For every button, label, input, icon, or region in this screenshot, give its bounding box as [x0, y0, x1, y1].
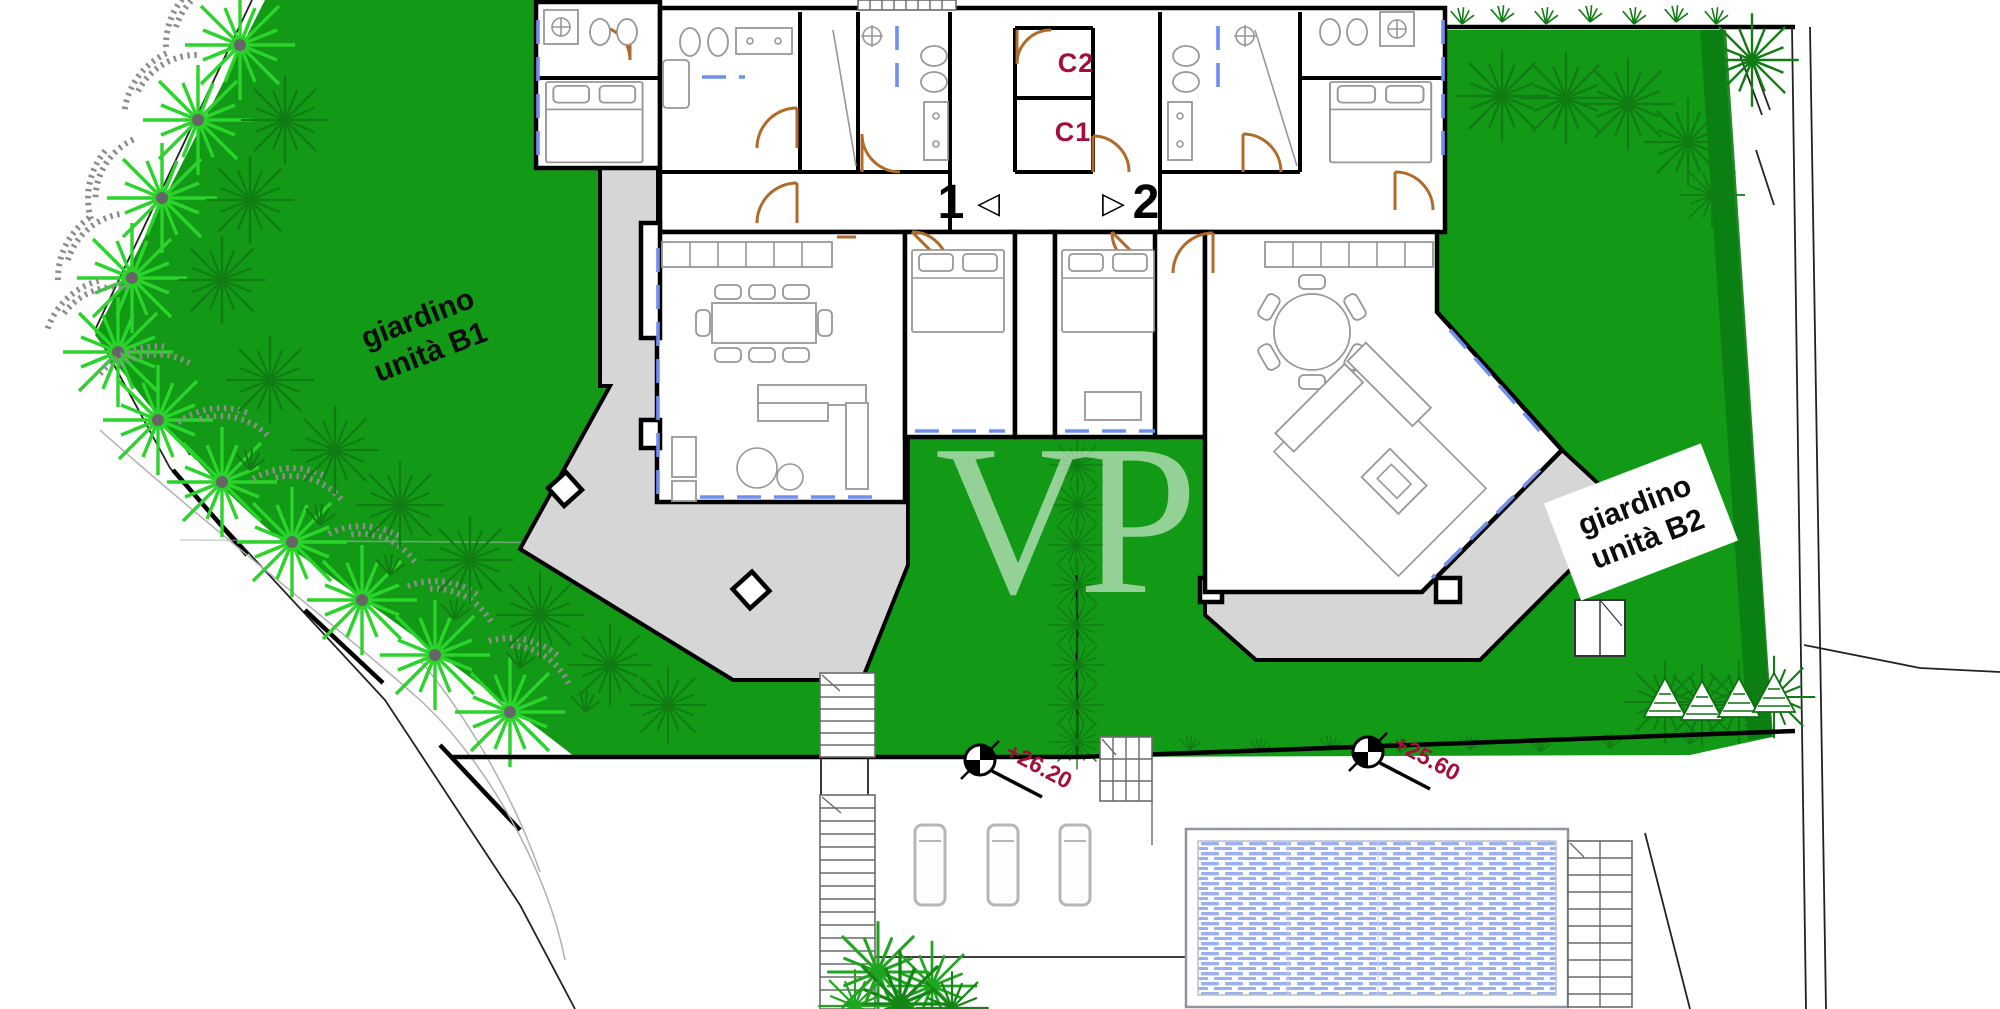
- tv-unit: [672, 481, 696, 501]
- bed-center-right: [1062, 250, 1154, 332]
- bidet: [617, 19, 637, 45]
- unit2-number: 2: [1133, 176, 1160, 229]
- garden-shed: [1575, 600, 1625, 656]
- floorplan-canvas: giardino unità B1 giardino unità B2 C2 C…: [0, 0, 2000, 1009]
- sun-loungers: [915, 825, 1090, 905]
- bed-left-block: [546, 82, 643, 162]
- kitchen-counter: [662, 242, 832, 267]
- bidet: [921, 72, 947, 92]
- pool: [1186, 829, 1568, 1007]
- unit1-arrow-icon: ◁: [977, 186, 1000, 221]
- bathtub: [663, 60, 689, 108]
- bidet: [708, 28, 728, 56]
- sink-counter: [736, 28, 792, 54]
- dining-table: [712, 303, 816, 343]
- toilet: [680, 28, 700, 56]
- toilet: [590, 19, 610, 45]
- sofa: [846, 403, 868, 489]
- terrace-pillar: [1436, 578, 1460, 602]
- bidet: [1173, 72, 1199, 92]
- unit2-arrow-icon: ▷: [1102, 186, 1125, 221]
- floorplan-drawing: giardino unità B1 giardino unità B2 C2 C…: [0, 0, 2000, 1009]
- unit1-number: 1: [938, 176, 965, 229]
- vp-watermark: VP: [935, 400, 1189, 639]
- pool-ladder-steps: [1568, 841, 1632, 1007]
- bidet: [1347, 19, 1367, 45]
- sofa-seat: [758, 403, 828, 421]
- toilet: [1320, 19, 1340, 45]
- toilet: [1173, 46, 1199, 66]
- sink-counter: [924, 102, 948, 160]
- bed-right-block: [1330, 82, 1431, 162]
- bed-center-left: [912, 250, 1004, 332]
- stairs-garden: [820, 673, 875, 757]
- tv-unit: [672, 437, 696, 477]
- sink-counter: [1168, 102, 1192, 160]
- sofa: [758, 385, 866, 405]
- pool-water: [1198, 841, 1556, 995]
- stairs-top: [858, 0, 956, 10]
- storage-c2-label: C2: [1058, 48, 1095, 78]
- toilet: [921, 46, 947, 66]
- storage-c1-label: C1: [1055, 117, 1092, 147]
- stairs-terrace: [1100, 737, 1152, 845]
